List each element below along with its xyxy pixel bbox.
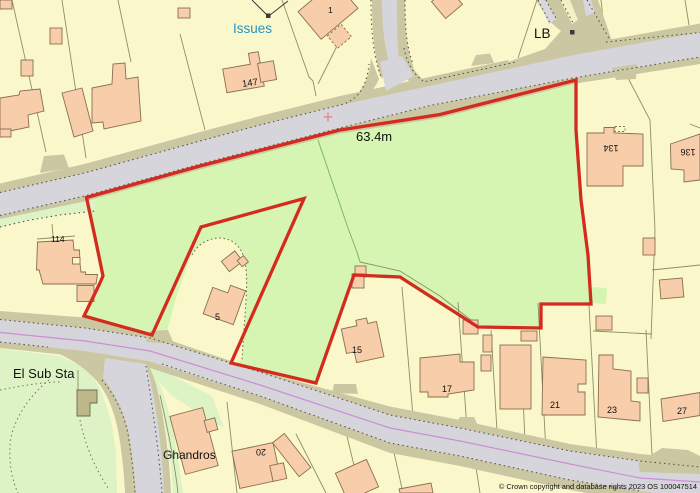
svg-text:© Crown copyright and database: © Crown copyright and database rights 20… (499, 482, 697, 491)
svg-text:LB: LB (534, 26, 551, 41)
svg-text:1: 1 (328, 5, 333, 15)
svg-text:5: 5 (215, 312, 220, 322)
svg-text:134: 134 (603, 143, 618, 153)
svg-text:El Sub Sta: El Sub Sta (13, 366, 75, 381)
svg-text:17: 17 (442, 384, 452, 394)
svg-text:Ghandros: Ghandros (163, 448, 216, 462)
svg-text:114: 114 (51, 234, 65, 244)
svg-text:147: 147 (241, 77, 258, 90)
svg-text:20: 20 (256, 447, 266, 457)
svg-text:23: 23 (607, 405, 617, 415)
svg-text:136: 136 (680, 147, 695, 157)
svg-text:27: 27 (677, 406, 687, 416)
svg-text:15: 15 (352, 345, 362, 355)
svg-text:63.4m: 63.4m (356, 129, 392, 144)
svg-text:Issues: Issues (233, 21, 272, 36)
svg-text:21: 21 (550, 400, 560, 410)
